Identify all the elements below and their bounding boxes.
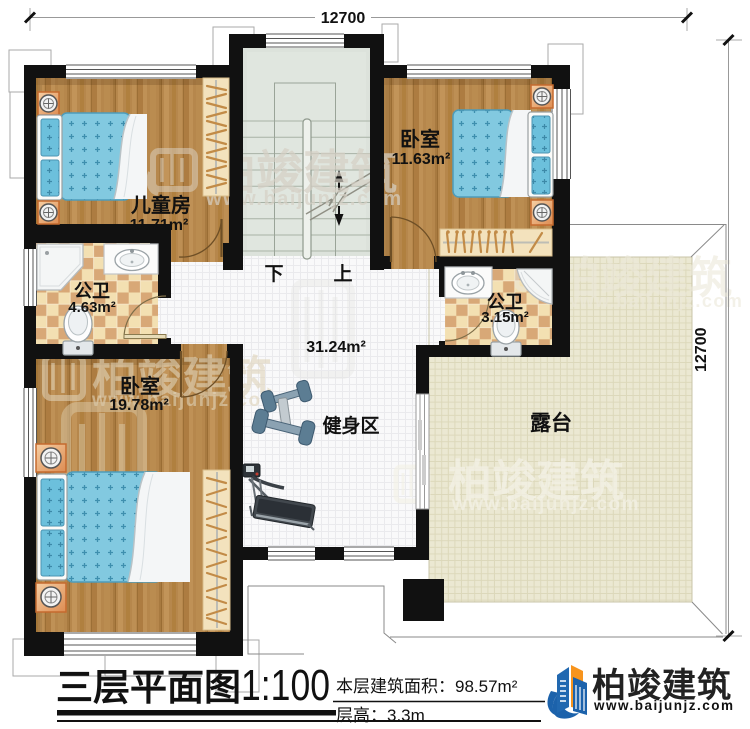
svg-text:12700: 12700: [693, 327, 710, 372]
svg-text:本层建筑面积：98.57m²: 本层建筑面积：98.57m²: [336, 677, 518, 696]
svg-text:11.71m²: 11.71m²: [130, 217, 189, 234]
svg-text:露台: 露台: [530, 411, 572, 435]
svg-text:公卫: 公卫: [74, 281, 110, 301]
svg-text:上: 上: [333, 263, 352, 285]
svg-text:健身区: 健身区: [322, 414, 379, 437]
svg-text:11.63m²: 11.63m²: [392, 151, 451, 168]
svg-text:儿童房: 儿童房: [130, 193, 191, 217]
svg-text:www.baijunjz.com: www.baijunjz.com: [451, 494, 640, 515]
svg-text:3.15m²: 3.15m²: [481, 309, 529, 326]
svg-text:卧室: 卧室: [400, 127, 440, 151]
svg-text:4.63m²: 4.63m²: [68, 299, 116, 316]
svg-text:层高：3.3m: 层高：3.3m: [336, 706, 425, 725]
svg-text:卧室: 卧室: [120, 374, 160, 398]
svg-text:下: 下: [264, 264, 283, 285]
svg-text:www.baijunjz.com: www.baijunjz.com: [563, 291, 743, 311]
svg-text:19.78m²: 19.78m²: [109, 397, 169, 414]
svg-text:31.24m²: 31.24m²: [306, 339, 366, 356]
svg-text:三层平面图1:100: 三层平面图1:100: [56, 661, 330, 710]
svg-text:12700: 12700: [321, 10, 366, 27]
svg-text:www.baijunjz.com: www.baijunjz.com: [593, 698, 735, 713]
